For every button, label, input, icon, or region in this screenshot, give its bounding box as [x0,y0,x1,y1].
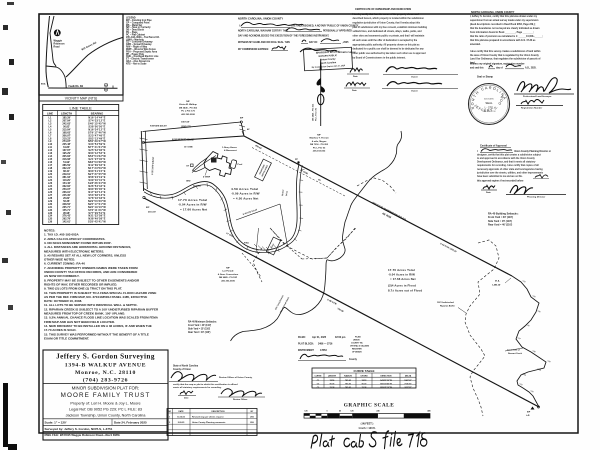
svg-text:dedicated for a public use sha: dedicated for a public use shall be deem… [353,48,425,51]
svg-text:the area of Union County that: the area of Union County that is regulat… [470,54,540,57]
svg-text:requirements for recording. I: requirements for recording. I also certi… [477,164,539,167]
svg-text:DWG FILE: BT/2015 Waggie Robi: DWG FILE: BT/2015 Waggie Robinson Road—R… [45,433,120,437]
svg-text:745.43: 745.43 [345,379,351,382]
svg-text:to and approved in accordance: to and approved in accordance with the U… [477,157,536,160]
svg-text:1: 1 [169,416,170,418]
svg-text:Land Use Ordinance, that regul: Land Use Ordinance, that regulates the s… [470,58,541,61]
svg-text:Rear Yard = 40' (110'): Rear Yard = 40' (110') [488,224,512,227]
svg-text:S55°31'10"W: S55°31'10"W [380,387,392,389]
svg-text:I hereby certify that I am the: I hereby certify that I am the owner of … [353,13,420,16]
svg-text:DELTA: DELTA [405,374,412,377]
svg-text:designee, certify that this pl: designee, certify that this plat creates… [477,153,541,156]
svg-text:amended.: amended. [470,44,481,46]
svg-text:8.7± Acres out of Flood: 8.7± Acres out of Flood [388,288,422,292]
svg-text:BOA: BOA [41,83,46,86]
svg-text:CERTIFICATE OF OWNERSHIP AND D: CERTIFICATE OF OWNERSHIP AND DEDICATION [355,8,411,11]
svg-text:WITNESS MY HAND AND OFFICIAL S: WITNESS MY HAND AND OFFICIAL SEAL THIS [238,41,290,44]
svg-text:GRD: GRD [186,181,191,183]
svg-text:and seal this: and seal this [470,66,484,69]
svg-text:DATE: DATE [178,410,184,413]
svg-text:S43°51'30"W: S43°51'30"W [380,379,392,382]
svg-text:CRYSTAL D GILLIARD: CRYSTAL D GILLIARD [350,345,370,348]
svg-text:Development Ordinance, and tha: Development Ordinance, and that it meets… [477,161,536,164]
svg-text:that the ratio of precision as: that the ratio of precision as calculate… [470,35,543,38]
svg-text:Front Yard = 40' (110'): Front Yard = 40' (110') [488,216,513,219]
svg-text:Apr 01, 2025: Apr 01, 2025 [312,336,327,339]
svg-text:100' Undisturbed: 100' Undisturbed [437,301,455,304]
svg-text:2: 2 [169,422,170,424]
svg-text:plan of subdivision with my fr: plan of subdivision with my free consent… [353,26,428,29]
svg-text:4' WWF: 4' WWF [203,176,211,179]
svg-text:OF DEEDS: OF DEEDS [352,352,362,354]
svg-text:1067.58': 1067.58' [181,122,190,124]
svg-text:Lot Parade: Lot Parade [222,270,234,273]
svg-text:BEARING: BEARING [91,111,103,115]
svg-text:Date 24, February 2025: Date 24, February 2025 [114,420,147,424]
svg-text:DIRECTION: DIRECTION [381,375,393,377]
svg-text:= 4.50 Acres Net: = 4.50 Acres Net [233,196,259,200]
svg-text:regulation jurisdiction of Uni: regulation jurisdiction of Union County,… [353,22,421,25]
svg-text:COUNTY NC: COUNTY NC [351,343,363,345]
svg-text:Scale: 1" = 120': Scale: 1" = 120' [45,420,67,424]
svg-text:RA-40 Building Setbacks:: RA-40 Building Setbacks: [488,213,519,216]
svg-text:745.43: 745.43 [345,382,351,385]
svg-text:Registration Number: Registration Number [521,107,542,110]
svg-text:17.70 Acres Total: 17.70 Acres Total [388,268,415,272]
svg-text:NORTH CAROLINA, WAXHAW CERTIFY: NORTH CAROLINA, WAXHAW CERTIFY THAT [238,30,289,33]
svg-text:Review Officer of Union County: Review Officer of Union County, [219,376,253,379]
svg-text:NORTH CAROLINA, UNION COUNTY: NORTH CAROLINA, UNION COUNTY [471,11,515,14]
svg-text:#05-193-0030: #05-193-0030 [181,114,195,116]
svg-text:Planning Director: Planning Director [527,196,545,199]
svg-text:MY COMMISSION EXPIRES:: MY COMMISSION EXPIRES: [238,49,269,51]
svg-text:A.D., 2025.: A.D., 2025. [525,66,537,69]
svg-text:INSTRUMENT:: INSTRUMENT: [298,349,314,352]
svg-text:NTS – Not to Scale: NTS – Not to Scale [126,62,147,65]
svg-text:DESCRIPTION: DESCRIPTION [212,411,226,413]
svg-text:Review Officer: Review Officer [233,398,248,401]
svg-text:Union County Planning comments: Union County Planning comments [192,421,226,424]
svg-text:from information found in Book: from information found in Book ________,… [470,31,534,34]
svg-text:N 88°48'06"E 519.62': N 88°48'06"E 519.62' [172,138,195,141]
svg-text:RA-40 Minimum Setbacks:: RA-40 Minimum Setbacks: [188,321,217,324]
svg-text:JSG: JSG [250,422,254,424]
svg-text:Surveyed by: Jeffery S. Gor: Surveyed by: Jeffery S. Gordon, NCPLS, L… [45,427,113,431]
svg-text:Union County Planning Director: Union County Planning Director or [514,150,551,153]
svg-text:Seal or Stamp: Seal or Stamp [477,76,493,79]
svg-text:#05-193-002: #05-193-002 [313,151,326,153]
svg-text:95.05: 95.05 [330,383,335,385]
svg-text:Pool: Pool [238,164,243,166]
svg-text:Professional Land Surveyor: Professional Land Surveyor [523,96,552,98]
svg-text:FILED:: FILED: [298,336,306,339]
svg-text:S50°23'40"W: S50°23'40"W [380,382,392,385]
svg-text:VICINITY MAP (NTS): VICINITY MAP (NTS) [65,97,97,101]
svg-text:Date: Date [353,75,359,78]
svg-text:M. A.: M. A. [495,280,500,283]
svg-text:Property of: Lori H. Moore &: Property of: Lori H. Moore & Joy L. Moor… [70,402,140,406]
svg-text:, 2025: , 2025 [342,42,349,44]
svg-text:7°18'20": 7°18'20" [404,383,411,385]
svg-text:Jeffery S. Gordon Surveying: Jeffery S. Gordon Surveying [56,353,155,361]
svg-text:1 inch = 120 ft.: 1 inch = 120 ft. [358,427,376,430]
svg-text:P/SA: P/SA [244,242,249,245]
svg-text:this approval expires if not r: this approval expires if not recorded be… [477,179,524,182]
svg-text:LENGTH: LENGTH [328,375,337,377]
svg-text:THE UNDERSIGNED, A NOTARY PUBL: THE UNDERSIGNED, A NOTARY PUBLIC OF UNIO… [291,25,359,28]
svg-text:2110.39': 2110.39' [148,212,156,214]
svg-text:Date: Date [486,191,492,194]
svg-text:Date: Date [352,89,358,92]
svg-text:day of: day of [496,67,503,69]
svg-text:20' GRB: 20' GRB [193,186,201,188]
svg-text:Faulk Db. Rd: Faulk Db. Rd [69,85,84,88]
svg-text:that the boundaries not survey: that the boundaries not surveyed are cle… [470,27,540,30]
svg-text:LINE TABLE: LINE TABLE [70,105,93,110]
svg-text:2-26-05: 2-26-05 [178,422,185,424]
svg-text:by Board of Commissioners in t: by Board of Commissioners in the public … [353,56,407,59]
svg-text:DAY AND ACKNOWLEDGED THE EXECU: DAY AND ACKNOWLEDGED THE EXECUTION OF TH… [238,35,329,38]
svg-text:95.00: 95.00 [362,383,367,385]
svg-text:described hereon, which proper: described hereon, which property is loca… [353,17,425,20]
svg-text:84: 84 [105,89,107,92]
svg-text:Revised map per clients reques: Revised map per clients request [192,415,224,418]
svg-text:other public use authorized by: other public use authorized by law when … [353,52,427,55]
svg-text:& Sons Consortium: & Sons Consortium [218,273,238,276]
svg-text:120: 120 [304,411,307,413]
svg-text:S35°43'41"W: S35°43'41"W [88,221,106,224]
svg-text:JSG: JSG [250,416,254,418]
svg-text:142.61': 142.61' [62,221,71,224]
svg-text:L-45: L-45 [526,414,530,417]
svg-text:5°43'50": 5°43'50" [404,379,411,382]
svg-text:(2345.72'): (2345.72') [181,125,191,128]
svg-text:C3: C3 [317,387,319,389]
svg-text:Rear Yard = 40' (110'): Rear Yard = 40' (110') [188,331,211,334]
svg-text:Monroe, N.C. 28110: Monroe, N.C. 28110 [75,370,136,376]
svg-text:10-15-05: 10-15-05 [177,416,185,418]
svg-text:= 17.66 Acres Net: = 17.66 Acres Net [180,207,207,211]
svg-text:UNION: UNION [353,340,360,342]
svg-text:GRAPHIC SCALE: GRAPHIC SCALE [344,403,395,409]
svg-text:Jackson Township, Union County: Jackson Township, Union County, North Ca… [66,414,147,418]
svg-text:02:00 pm: 02:00 pm [335,336,345,339]
svg-text:N 88°48'E 406.99': N 88°48'E 406.99' [150,125,167,128]
svg-text:3466 — 3716: 3466 — 3716 [318,343,333,346]
svg-text:County: County [349,358,358,361]
svg-text:DAY OF: DAY OF [309,41,318,44]
svg-text:745.43: 745.43 [345,386,351,389]
svg-text:DB 3436 - PG 352: DB 3436 - PG 352 [312,103,315,121]
svg-text:PERSONALLY APPEARED: PERSONALLY APPEARED [323,30,352,33]
svg-text:MOORE FAMILY TRUST: MOORE FAMILY TRUST [61,392,151,399]
svg-text:that this plat was prepared in: that this plat was prepared in accordanc… [470,39,536,42]
svg-text:-0.04 Acres in R/W: -0.04 Acres in R/W [178,203,207,207]
svg-text:RADIUS: RADIUS [344,374,352,377]
svg-text:I also certify that this surve: I also certify that this survey creates … [470,50,541,53]
svg-text:NORTH CAROLINA, UNION COUNTY: NORTH CAROLINA, UNION COUNTY [238,17,283,21]
svg-text:Side Yard = 15' (110'): Side Yard = 15' (110') [488,220,512,223]
svg-text:SEAL: SEAL [485,101,493,105]
svg-text:240: 240 [376,410,379,413]
svg-text:appropriate public authority.: appropriate public authority. All proper… [353,43,421,46]
svg-text:33.38: 33.38 [362,387,367,389]
svg-text:C2: C2 [317,383,319,385]
svg-text:jurisdiction over the streets,: jurisdiction over the streets, utilities… [476,171,544,174]
svg-text:0: 0 [326,411,327,413]
svg-text:Owner: Owner [411,77,418,79]
svg-text:1,486.34': 1,486.34' [492,284,501,287]
svg-text:Owner: Owner [411,91,418,93]
svg-text:Stewart Creek: Stewart Creek [508,352,523,355]
svg-text:74.53: 74.53 [362,379,367,382]
svg-text:Riparian Buffer: Riparian Buffer [440,305,455,308]
svg-text:60: 60 [339,411,341,413]
svg-text:(2)4 Acres in Flood: (2)4 Acres in Flood [388,284,416,288]
svg-text:DB 7216 - PG 052: DB 7216 - PG 052 [310,144,329,146]
svg-text:Front Yard = 40' (110'): Front Yard = 40' (110') [188,324,211,327]
svg-text:LINE: LINE [47,111,53,115]
svg-text:601: 601 [105,85,108,87]
svg-text:2°33'55": 2°33'55" [404,387,411,389]
svg-text:have been submitted to me and: have been submitted to me and are on fil… [477,175,523,178]
svg-text:County of Union: County of Union [173,368,191,371]
svg-text:L36: L36 [48,221,53,224]
svg-text:480: 480 [427,410,430,413]
svg-text:LENGTH: LENGTH [61,111,72,115]
svg-text:& wife, Megan: & wife, Megan [312,141,327,143]
svg-text:Witness my original signature,: Witness my original signature, registrat… [470,62,525,65]
svg-text:DB 3436 - PG 352: DB 3436 - PG 352 [179,106,198,109]
svg-text:Matthew T. Threatt: Matthew T. Threatt [309,137,328,140]
svg-text:Legal Ref: DB 9052 PG 229; P: Legal Ref: DB 9052 PG 229; PC L FILE: 83 [69,408,142,412]
svg-text:all such areas until the offer: all such areas until the offer of dedica… [353,39,418,42]
svg-text:& Basement: & Basement [224,149,237,152]
svg-text:supervision from an actual sur: supervision from an actual survey made u… [470,19,539,22]
svg-text:Side Yard = 15' (110'): Side Yard = 15' (110') [188,328,210,331]
svg-text:CHORD: CHORD [360,375,368,377]
svg-text:other sites and easements publ: other sites and easements public or priv… [353,35,425,38]
svg-text:1394-B WALKUP AVENUE: 1394-B WALKUP AVENUE [65,363,146,369]
svg-text:1-Story House: 1-Story House [222,146,238,149]
svg-text:Certificate of Approval: Certificate of Approval [480,145,507,148]
svg-text:PC L File 93: PC L File 93 [313,147,326,149]
svg-text:State of North Carolina: State of North Carolina [173,365,199,368]
svg-text:PLAT BLOCK:: PLAT BLOCK: [298,343,314,346]
svg-text:= 17.66 Acres Net: = 17.66 Acres Net [390,277,416,281]
svg-text:EXAM OR TITLE COMMITMENT.: EXAM OR TITLE COMMITMENT. [44,336,89,340]
svg-text:L - 3751: L - 3751 [485,106,494,109]
svg-text:#05-193-0030: #05-193-0030 [221,280,235,282]
svg-text:(deed descriptions recorded in: (deed descriptions recorded in Deed Book… [470,23,536,26]
svg-text:I, Jeffery S. Gordon, certify: I, Jeffery S. Gordon, certify that this … [470,15,538,18]
svg-text:PC L File 175: PC L File 175 [316,107,318,121]
svg-text:certify that the map or plat t: certify that the map or plat to which th… [173,383,238,386]
svg-text:necessary approvals of other s: necessary approvals of other state and l… [477,168,543,171]
svg-text:( IN FEET ): ( IN FEET ) [361,423,374,426]
svg-text:REGISTER: REGISTER [352,349,362,351]
svg-text:DB 9085 - PG 53F: DB 9085 - PG 53F [219,277,238,279]
svg-text:-0.04 Acres in R/W: -0.04 Acres in R/W [388,273,415,277]
svg-text:15' O/SB: 15' O/SB [184,147,193,149]
svg-text:17.70 Acres Total: 17.70 Acres Total [178,198,207,202]
svg-text:120: 120 [350,411,353,413]
svg-text:(704) 283-9726: (704) 283-9726 [83,377,128,384]
svg-text:PC L File 175: PC L File 175 [181,111,195,113]
svg-text:C1: C1 [317,380,319,382]
svg-text:17853: 17853 [320,349,327,352]
svg-text:-0.09 Acres in R/W: -0.09 Acres in R/W [231,192,260,196]
svg-text:CURVE: CURVE [315,375,323,377]
svg-text:FILED: FILED [355,337,361,339]
svg-text:Road: Road [54,46,61,49]
svg-text:Krista M. Walkup: Krista M. Walkup [179,103,197,106]
svg-text:74.56: 74.56 [330,379,335,382]
svg-text:33.38: 33.38 [330,387,335,389]
svg-text:4.59 Acres Total: 4.59 Acres Total [231,187,258,191]
svg-text:CURVE TABLE: CURVE TABLE [353,369,374,373]
svg-text:meets all statutory requiremen: meets all statutory requirements for rec… [173,386,222,389]
svg-text:MINOR SUBDIVISION PLAT FOR:: MINOR SUBDIVISION PLAT FOR: [72,386,140,391]
svg-text:setback lines, and dedicated a: setback lines, and dedicated all streets… [353,30,423,33]
